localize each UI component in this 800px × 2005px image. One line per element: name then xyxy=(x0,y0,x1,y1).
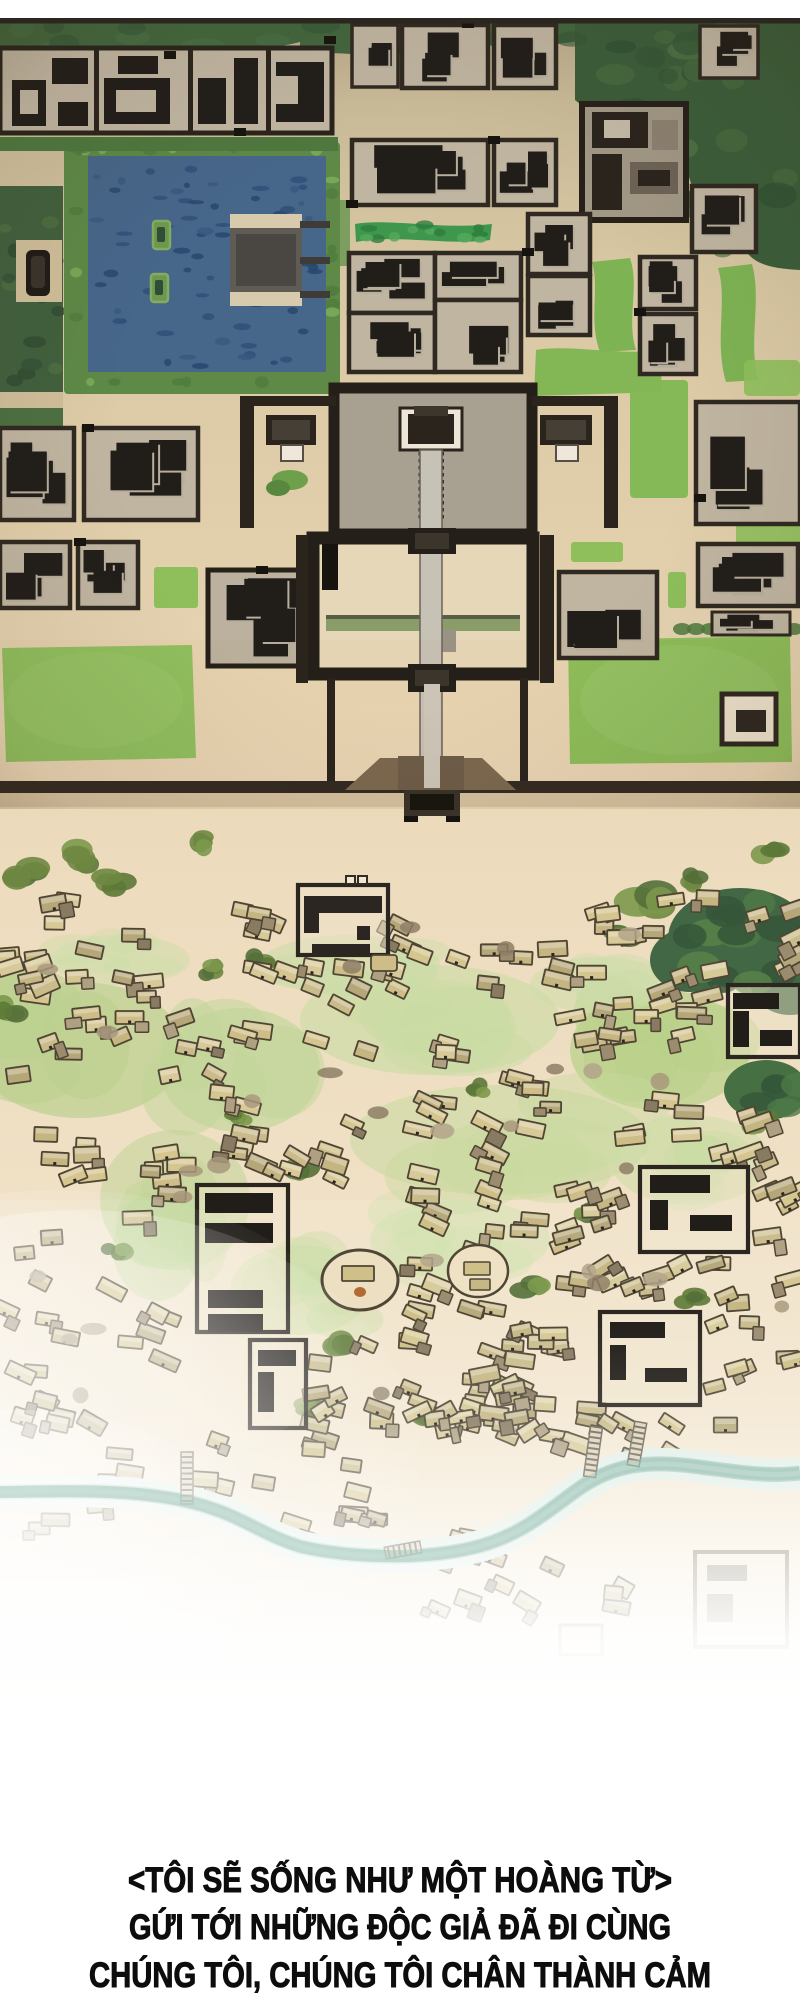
svg-text:CHÚNG TÔI, CHÚNG TÔI CHÂN THÀN: CHÚNG TÔI, CHÚNG TÔI CHÂN THÀNH CẢM xyxy=(89,1955,711,1995)
svg-text:<TÔI SẼ SỐNG NHƯ MỘT HOÀNG TỪ>: <TÔI SẼ SỐNG NHƯ MỘT HOÀNG TỪ> xyxy=(128,1860,672,1900)
svg-text:GỨI TỚI NHỮNG ĐỘC GIẢ ĐÃ ĐI CÙ: GỨI TỚI NHỮNG ĐỘC GIẢ ĐÃ ĐI CÙNG xyxy=(129,1907,671,1947)
